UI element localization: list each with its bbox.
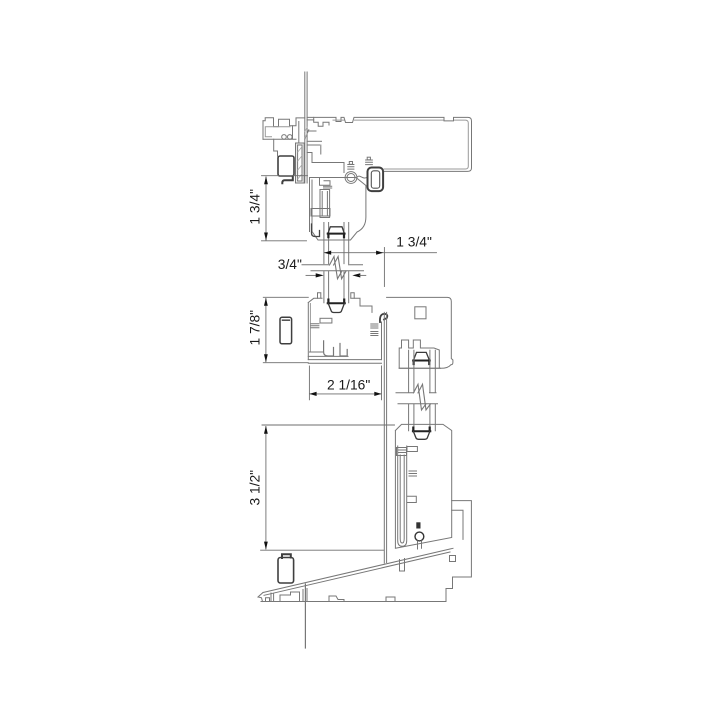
svg-text:3/4": 3/4" [278,257,302,272]
svg-text:1 7/8": 1 7/8" [247,310,262,346]
svg-text:2 1/16": 2 1/16" [327,377,370,392]
svg-text:1 3/4": 1 3/4" [396,235,432,250]
svg-text:1 3/4": 1 3/4" [247,189,262,225]
svg-text:3 1/2": 3 1/2" [247,470,262,506]
